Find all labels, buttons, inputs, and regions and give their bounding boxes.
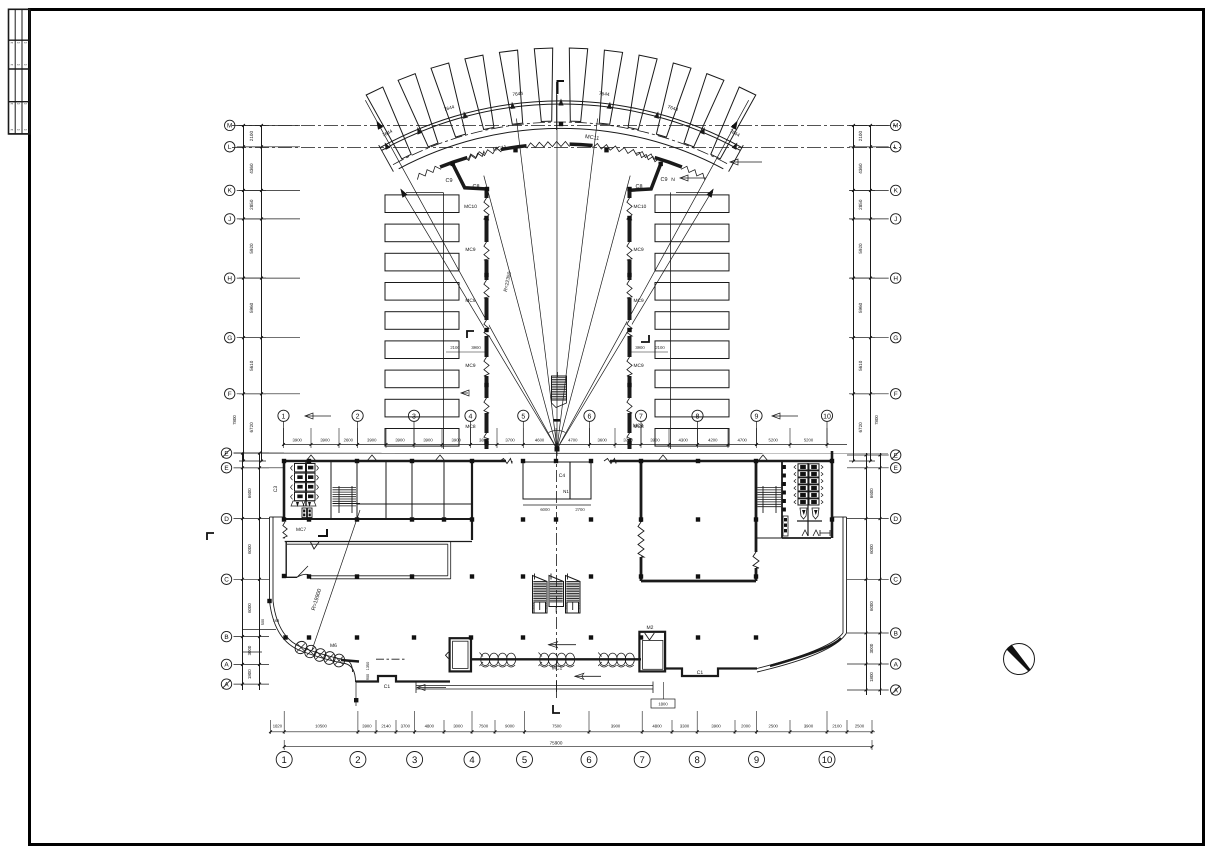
svg-text:1820: 1820: [273, 724, 283, 729]
svg-text:2850: 2850: [249, 199, 254, 210]
svg-text:3900: 3900: [804, 724, 814, 729]
svg-text:MC9: MC9: [465, 363, 475, 369]
svg-text:3700: 3700: [505, 438, 515, 443]
svg-text:3700: 3700: [401, 724, 411, 729]
svg-text:2600: 2600: [344, 438, 354, 443]
svg-text:MC9: MC9: [634, 298, 644, 304]
svg-text:C8: C8: [472, 184, 479, 190]
svg-text:6600: 6600: [247, 488, 252, 498]
svg-text:3600: 3600: [598, 438, 608, 443]
svg-text:MC9: MC9: [634, 363, 644, 369]
svg-text:C3: C3: [273, 486, 279, 493]
svg-text:4600: 4600: [535, 438, 545, 443]
svg-text:E: E: [894, 465, 898, 472]
svg-text:3: 3: [412, 755, 417, 766]
svg-text:4800: 4800: [425, 724, 435, 729]
svg-text:5610: 5610: [858, 360, 863, 371]
svg-text:3700: 3700: [623, 438, 633, 443]
svg-text:3000: 3000: [453, 724, 463, 729]
svg-text:B: B: [894, 630, 898, 637]
svg-text:MC10: MC10: [634, 204, 647, 210]
svg-text:10: 10: [823, 413, 831, 420]
svg-text:D: D: [893, 516, 898, 523]
svg-text:3900: 3900: [650, 438, 660, 443]
svg-text:163: 163: [273, 619, 279, 623]
svg-text:2100: 2100: [450, 345, 460, 350]
svg-text:4800: 4800: [652, 724, 662, 729]
svg-text:3: 3: [412, 413, 416, 420]
svg-text:6000: 6000: [540, 507, 550, 512]
svg-text:MC9: MC9: [465, 298, 475, 304]
svg-text:7: 7: [639, 413, 643, 420]
svg-text:10500: 10500: [315, 724, 327, 729]
svg-text:3900: 3900: [395, 438, 405, 443]
svg-text:C9: C9: [445, 178, 452, 184]
svg-text:MC10: MC10: [464, 204, 477, 210]
svg-text:6: 6: [586, 755, 591, 766]
svg-text:6000: 6000: [247, 544, 252, 554]
svg-text:3900: 3900: [320, 438, 330, 443]
svg-text:C1: C1: [384, 684, 391, 690]
svg-text:C4: C4: [559, 473, 566, 479]
svg-text:N: N: [671, 177, 675, 183]
svg-text:900: 900: [366, 674, 370, 680]
svg-text:4200: 4200: [708, 438, 718, 443]
svg-text:8: 8: [696, 413, 700, 420]
svg-text:2: 2: [356, 413, 360, 420]
svg-text:F: F: [228, 391, 232, 398]
svg-text:A: A: [224, 662, 229, 669]
svg-text:3900: 3900: [635, 345, 645, 350]
svg-text:5610: 5610: [249, 360, 254, 371]
svg-text:75900: 75900: [550, 740, 563, 745]
svg-text:4: 4: [469, 755, 474, 766]
svg-text:500: 500: [261, 619, 265, 625]
svg-text:J: J: [894, 216, 897, 223]
svg-text:C8: C8: [635, 184, 642, 190]
svg-text:MC7: MC7: [296, 527, 306, 533]
svg-text:6000: 6000: [247, 603, 252, 613]
svg-text:3900: 3900: [471, 345, 481, 350]
svg-text:5200: 5200: [769, 438, 779, 443]
svg-text:E: E: [224, 465, 228, 472]
svg-text:C1: C1: [697, 670, 704, 676]
svg-text:1800: 1800: [658, 702, 668, 707]
svg-text:G: G: [893, 335, 898, 342]
svg-text:G: G: [227, 335, 232, 342]
svg-text:2000: 2000: [741, 724, 751, 729]
svg-text:1: 1: [282, 413, 286, 420]
svg-text:9: 9: [754, 755, 759, 766]
svg-text:K: K: [228, 188, 233, 195]
svg-text:C: C: [893, 577, 898, 584]
svg-text:MC1: MC1: [552, 666, 563, 672]
svg-text:3900: 3900: [293, 438, 303, 443]
svg-text:4360: 4360: [249, 163, 254, 174]
svg-text:1350: 1350: [366, 662, 370, 670]
svg-text:5: 5: [521, 413, 525, 420]
svg-text:N1: N1: [563, 489, 569, 494]
svg-text:7: 7: [640, 755, 645, 766]
svg-text:4: 4: [469, 413, 473, 420]
svg-text:2140: 2140: [381, 724, 391, 729]
svg-text:M2: M2: [647, 625, 654, 631]
svg-text:3800: 3800: [479, 438, 489, 443]
svg-text:H: H: [227, 275, 232, 282]
svg-text:F: F: [894, 391, 898, 398]
svg-text:3900: 3900: [423, 438, 433, 443]
svg-text:4700: 4700: [738, 438, 748, 443]
svg-text:5960: 5960: [858, 302, 863, 313]
svg-text:7800: 7800: [232, 415, 237, 425]
svg-text:3900: 3900: [362, 724, 372, 729]
svg-text:6: 6: [588, 413, 592, 420]
svg-text:MC8: MC8: [633, 423, 643, 429]
svg-text:MC9: MC9: [465, 247, 475, 253]
svg-text:6000: 6000: [869, 544, 874, 554]
svg-text:5: 5: [522, 755, 527, 766]
svg-text:2100: 2100: [832, 724, 842, 729]
svg-text:2100: 2100: [655, 345, 665, 350]
svg-text:1: 1: [282, 755, 287, 766]
svg-text:1800: 1800: [247, 669, 252, 679]
svg-text:A: A: [894, 661, 899, 668]
svg-text:MC9: MC9: [634, 247, 644, 253]
svg-text:3900: 3900: [367, 438, 377, 443]
svg-text:C9: C9: [660, 177, 667, 183]
svg-text:8: 8: [695, 755, 700, 766]
svg-text:H: H: [893, 275, 898, 282]
svg-text:6720: 6720: [858, 422, 863, 433]
svg-text:2500: 2500: [855, 724, 865, 729]
svg-text:4360: 4360: [858, 163, 863, 174]
svg-text:2: 2: [355, 755, 360, 766]
svg-text:L: L: [894, 144, 898, 151]
svg-text:B: B: [224, 634, 228, 641]
svg-text:7644: 7644: [512, 91, 524, 98]
svg-text:5200: 5200: [804, 438, 814, 443]
svg-text:M: M: [227, 123, 232, 130]
svg-text:2500: 2500: [769, 724, 779, 729]
svg-text:7800: 7800: [874, 415, 879, 425]
svg-text:3900: 3900: [452, 438, 462, 443]
svg-text:3300: 3300: [680, 724, 690, 729]
svg-text:1800: 1800: [869, 672, 874, 682]
svg-text:10: 10: [822, 755, 833, 766]
svg-text:3900: 3900: [711, 724, 721, 729]
svg-text:4300: 4300: [679, 438, 689, 443]
svg-text:D: D: [224, 516, 229, 523]
svg-text:M6: M6: [330, 643, 337, 649]
svg-text:3900: 3900: [611, 724, 621, 729]
svg-text:6600: 6600: [869, 488, 874, 498]
svg-text:9000: 9000: [505, 724, 515, 729]
svg-text:7500: 7500: [479, 724, 489, 729]
svg-text:5920: 5920: [858, 243, 863, 254]
svg-text:2850: 2850: [858, 199, 863, 210]
svg-text:7500: 7500: [552, 724, 562, 729]
svg-text:9: 9: [755, 413, 759, 420]
svg-text:2100: 2100: [249, 131, 254, 142]
svg-text:J: J: [228, 216, 231, 223]
svg-text:L: L: [228, 144, 232, 151]
svg-text:2100: 2100: [858, 131, 863, 142]
svg-text:6000: 6000: [869, 601, 874, 611]
svg-text:4700: 4700: [568, 438, 578, 443]
svg-text:6720: 6720: [249, 422, 254, 433]
svg-text:3000: 3000: [247, 645, 252, 655]
svg-text:K: K: [894, 188, 899, 195]
svg-text:5960: 5960: [249, 302, 254, 313]
svg-text:5920: 5920: [249, 243, 254, 254]
svg-text:2700: 2700: [575, 507, 585, 512]
svg-text:C: C: [224, 577, 229, 584]
svg-text:3000: 3000: [869, 643, 874, 653]
svg-text:M: M: [893, 123, 898, 130]
svg-text:7644: 7644: [599, 91, 611, 98]
